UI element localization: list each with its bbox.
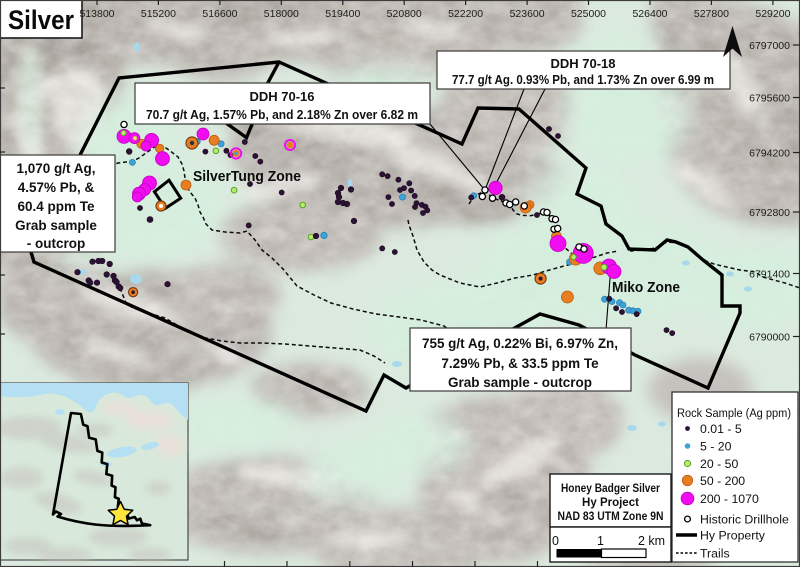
svg-text:Honey Badger Silver: Honey Badger Silver: [561, 483, 660, 495]
svg-text:77.7 g/t Ag. 0.93% Pb, and 1.7: 77.7 g/t Ag. 0.93% Pb, and 1.73% Zn over…: [452, 72, 714, 87]
svg-text:Grab sample: Grab sample: [15, 218, 97, 233]
svg-text:6792800: 6792800: [749, 207, 790, 219]
svg-text:7.29% Pb, & 33.5 ppm Te: 7.29% Pb, & 33.5 ppm Te: [441, 356, 599, 371]
svg-text:2 km: 2 km: [638, 534, 665, 548]
svg-text:6790000: 6790000: [749, 332, 790, 344]
svg-text:529200: 529200: [755, 8, 790, 20]
svg-text:515200: 515200: [141, 8, 176, 20]
svg-text:SilverTung Zone: SilverTung Zone: [193, 169, 301, 185]
svg-text:0: 0: [552, 534, 559, 548]
svg-text:4.57% Pb, &: 4.57% Pb, &: [18, 180, 95, 195]
svg-text:DDH 70-18: DDH 70-18: [550, 56, 615, 71]
svg-text:6795600: 6795600: [749, 93, 790, 105]
svg-text:0.01 - 5: 0.01 - 5: [700, 422, 742, 436]
svg-text:520800: 520800: [387, 8, 422, 20]
svg-text:1: 1: [597, 534, 604, 548]
svg-text:60.4 ppm Te: 60.4 ppm Te: [17, 199, 95, 214]
svg-text:6794200: 6794200: [749, 148, 790, 160]
svg-text:20 - 50: 20 - 50: [700, 457, 738, 471]
svg-text:Hy Property: Hy Property: [700, 529, 766, 543]
svg-text:Grab sample - outcrop: Grab sample - outcrop: [448, 375, 592, 390]
svg-text:513800: 513800: [79, 8, 114, 20]
svg-text:523600: 523600: [510, 8, 545, 20]
svg-text:755 g/t Ag, 0.22% Bi, 6.97% Zn: 755 g/t Ag, 0.22% Bi, 6.97% Zn,: [422, 336, 618, 351]
svg-text:522200: 522200: [448, 8, 483, 20]
svg-text:518000: 518000: [264, 8, 299, 20]
svg-text:Hy Project: Hy Project: [582, 497, 639, 509]
svg-text:70.7 g/t Ag, 1.57% Pb, and 2.1: 70.7 g/t Ag, 1.57% Pb, and 2.18% Zn over…: [146, 107, 418, 122]
svg-text:- outcrop: - outcrop: [27, 236, 86, 251]
svg-text:1,070 g/t Ag,: 1,070 g/t Ag,: [16, 161, 95, 176]
svg-text:6797000: 6797000: [749, 40, 790, 52]
svg-text:Trails: Trails: [700, 547, 730, 561]
svg-text:6791400: 6791400: [749, 269, 790, 281]
svg-text:5 - 20: 5 - 20: [700, 440, 732, 454]
svg-text:527800: 527800: [694, 8, 729, 20]
svg-text:526400: 526400: [632, 8, 667, 20]
svg-text:NAD 83 UTM Zone 9N: NAD 83 UTM Zone 9N: [558, 511, 664, 523]
svg-text:516600: 516600: [202, 8, 237, 20]
svg-text:Historic Drillhole: Historic Drillhole: [700, 513, 789, 527]
svg-text:50 - 200: 50 - 200: [700, 474, 745, 488]
svg-text:525000: 525000: [571, 8, 606, 20]
svg-text:Rock Sample (Ag ppm): Rock Sample (Ag ppm): [677, 406, 791, 420]
svg-text:Miko Zone: Miko Zone: [612, 280, 680, 296]
svg-text:DDH 70-16: DDH 70-16: [249, 89, 314, 104]
svg-text:200 - 1070: 200 - 1070: [700, 492, 759, 506]
svg-text:Silver: Silver: [8, 5, 74, 35]
svg-text:519400: 519400: [325, 8, 360, 20]
